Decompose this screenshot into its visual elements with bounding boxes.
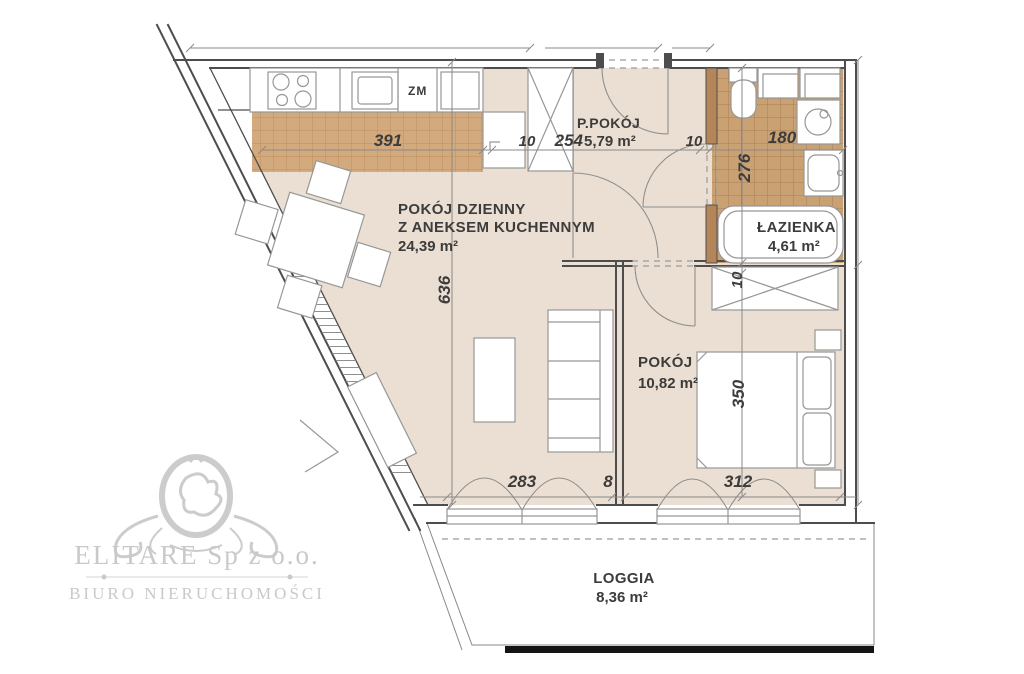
diagonal-window-casement xyxy=(300,420,338,472)
dishwasher-label: ZM xyxy=(408,84,427,98)
bedroom-furniture xyxy=(697,267,841,488)
dim-bath-height: 276 xyxy=(735,153,754,183)
bedroom-area: 10,82 m² xyxy=(638,375,698,392)
dim-wall-hall-right: 10 xyxy=(686,133,703,150)
entrance-jamb-right xyxy=(664,53,672,68)
pillow-bottom xyxy=(803,413,831,465)
bedroom-label: POKÓJ xyxy=(638,353,693,371)
kitchen-tiles xyxy=(252,110,483,172)
dim-kitchen-width: 391 xyxy=(374,131,402,150)
nightstand-bottom xyxy=(815,470,841,488)
loggia-outer-slant xyxy=(415,518,462,650)
watermark-subtitle: BIURO NIERUCHOMOŚCI xyxy=(69,584,325,603)
dining-chair-left xyxy=(235,200,278,244)
nightstand-top xyxy=(815,330,841,350)
living-room-label: POKÓJ DZIENNY xyxy=(398,200,526,218)
floor-plan-page: POKÓJ DZIENNY Z ANEKSEM KUCHENNYM 24,39 … xyxy=(0,0,1024,674)
loggia-railing xyxy=(505,646,874,653)
dim-bedroom-width: 312 xyxy=(724,472,753,491)
dim-partition: 8 xyxy=(603,472,613,491)
living-room-label-2: Z ANEKSEM KUCHENNYM xyxy=(398,219,595,236)
entrance-opening-dash xyxy=(598,60,670,68)
washing-machine-icon xyxy=(797,100,840,144)
dim-living-height: 636 xyxy=(435,275,454,304)
sofa xyxy=(548,310,613,452)
watermark-company: ELITARE Sp z o.o. xyxy=(74,540,320,570)
loggia-label: LOGGIA xyxy=(593,570,655,587)
bathroom-area: 4,61 m² xyxy=(768,238,820,255)
entrance-jamb-left xyxy=(596,53,604,68)
dim-living-width: 283 xyxy=(507,472,537,491)
bath-wall-stub-top xyxy=(706,68,717,144)
dim-bath-width: 180 xyxy=(768,128,797,147)
hall-label: P.POKÓJ xyxy=(577,114,640,131)
dim-wall-hall-left: 10 xyxy=(519,133,536,150)
watermark-divider xyxy=(86,575,308,580)
bath-wall-stub-bottom xyxy=(706,205,717,263)
bath-shelf-right xyxy=(800,68,840,98)
loggia-area: 8,36 m² xyxy=(596,589,648,606)
pillow-top xyxy=(803,357,831,409)
coffee-table xyxy=(474,338,515,422)
living-room-area: 24,39 m² xyxy=(398,238,458,255)
watermark: ELITARE Sp z o.o. BIURO NIERUCHOMOŚCI xyxy=(69,457,325,603)
dim-bedroom-height: 350 xyxy=(729,379,748,408)
floor-plan: POKÓJ DZIENNY Z ANEKSEM KUCHENNYM 24,39 … xyxy=(0,0,1024,674)
bathroom-label: ŁAZIENKA xyxy=(757,219,836,236)
hall-area: 5,79 m² xyxy=(584,133,636,150)
dim-hall-width: 254 xyxy=(554,131,584,150)
dim-bed-wall: 10 xyxy=(729,271,746,288)
toilet-icon xyxy=(731,80,756,118)
bath-shelf-left xyxy=(758,68,798,98)
